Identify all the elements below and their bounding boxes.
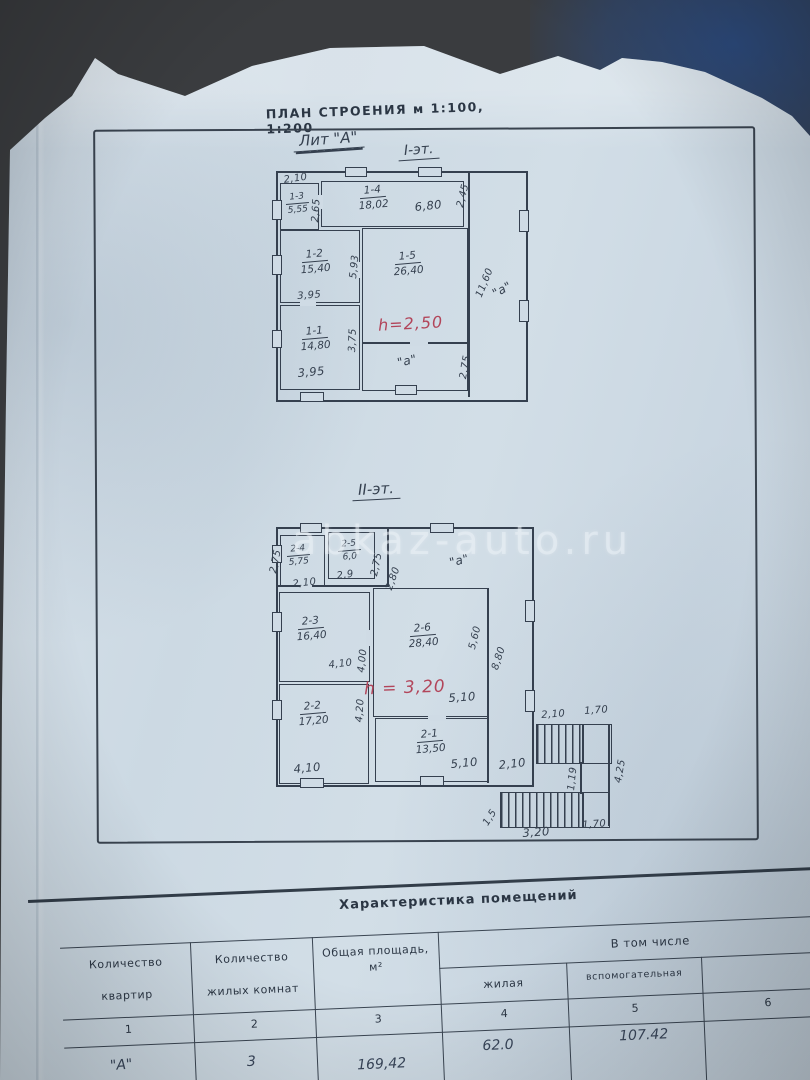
room-label-1-2: 1-2 15,40 (299, 247, 331, 277)
room-label-1-1: 1-1 14,80 (299, 324, 331, 354)
value-auxiliary-area: 107.42 (619, 1026, 669, 1044)
col-number: 4 (484, 1006, 525, 1021)
dimension-label: 1,70 (584, 704, 609, 717)
col-number: 6 (748, 995, 789, 1010)
col-header-total-area: Общая площадь, (312, 942, 438, 960)
stairs-upper-run (536, 724, 584, 764)
dimension-label: 2,65 (310, 198, 323, 223)
watermark-text: abkaz-auto.ru (292, 518, 633, 564)
table-line (439, 949, 810, 969)
window-mark (272, 330, 282, 348)
table-line (64, 1013, 810, 1049)
dimension-label: 1,70 (582, 818, 607, 831)
window-mark (272, 700, 282, 720)
col-header-auxiliary: вспомогательная (567, 967, 702, 984)
dimension-label: 4,10 (293, 760, 321, 776)
window-mark (525, 690, 535, 712)
value-apartments: "А" (109, 1056, 133, 1074)
col-header-apartments: Количество (61, 954, 191, 972)
col-number: 2 (234, 1017, 275, 1032)
door-opening (410, 340, 428, 346)
window-mark (300, 392, 324, 402)
stairs-lower-run (500, 792, 584, 828)
stairs-mid-wall (580, 762, 582, 794)
col-number: 1 (108, 1022, 149, 1037)
dimension-label: 6,80 (414, 197, 443, 214)
room-label-2-2: 2-2 17,20 (297, 699, 329, 729)
window-mark (272, 255, 282, 275)
col-number: 3 (358, 1012, 399, 1027)
value-total-area: 169,42 (357, 1055, 407, 1073)
col-header-living: жилая (440, 975, 567, 993)
dimension-label: 5,10 (448, 689, 476, 705)
characteristics-table: Характеристика помещений В том числе Кол… (28, 864, 810, 1080)
window-mark (418, 167, 442, 177)
window-mark (345, 167, 367, 177)
floor1-heading: I-эт. (397, 141, 440, 162)
floor2-height-note: h = 3,20 (364, 677, 446, 700)
door-opening (366, 630, 372, 646)
room-label-1-4: 1-4 18,02 (357, 183, 389, 213)
col-header-total-area-2: м² (313, 958, 439, 976)
col-header-rooms: Количество (190, 949, 312, 967)
table-group-header: В том числе (550, 931, 750, 953)
window-mark (300, 778, 324, 788)
value-rooms: 3 (247, 1054, 257, 1070)
col-number: 5 (615, 1001, 656, 1016)
dimension-label: 4,20 (354, 698, 367, 723)
col-header-rooms-2: жилых комнат (192, 981, 314, 999)
room-label-2-3: 2-3 16,40 (295, 614, 327, 644)
table-line (701, 957, 708, 1080)
window-mark (272, 200, 282, 220)
table-title: Характеристика помещений (328, 888, 588, 914)
room-label-2-1: 2-1 13,50 (414, 727, 446, 757)
table-line (438, 932, 447, 1080)
window-mark (272, 612, 282, 632)
window-mark (420, 776, 444, 786)
window-mark (395, 385, 417, 395)
dimension-label: 3,20 (522, 824, 550, 840)
door-opening (428, 715, 446, 721)
floor2-heading: II-эт. (352, 479, 401, 501)
dimension-label: 2,10 (541, 708, 566, 721)
room-label-2-6: 2-6 28,40 (407, 621, 439, 651)
photo-of-document: ПЛАН СТРОЕНИЯ м 1:100, 1:200 abkaz-auto.… (0, 0, 810, 1080)
window-mark (519, 210, 529, 232)
dimension-label: 3,75 (347, 328, 359, 352)
col-header-apartments-2: квартир (62, 986, 192, 1004)
dimension-label: 3,95 (297, 364, 325, 380)
dimension-label: 2,9 (336, 569, 354, 582)
floor1-height-note: h=2,50 (378, 312, 444, 334)
floor1-annex (362, 343, 468, 391)
window-mark (525, 600, 535, 622)
floor1-room-1-4 (321, 181, 464, 227)
value-living-area: 62.0 (482, 1037, 514, 1054)
window-mark (519, 300, 529, 322)
room-label-1-3: 1-3 5,55 (285, 191, 310, 217)
dimension-label: 3,95 (297, 289, 322, 302)
room-label-1-5: 1-5 26,40 (392, 249, 424, 279)
dimension-label: 2,10 (498, 755, 527, 772)
dimension-label: 5,10 (450, 755, 478, 771)
